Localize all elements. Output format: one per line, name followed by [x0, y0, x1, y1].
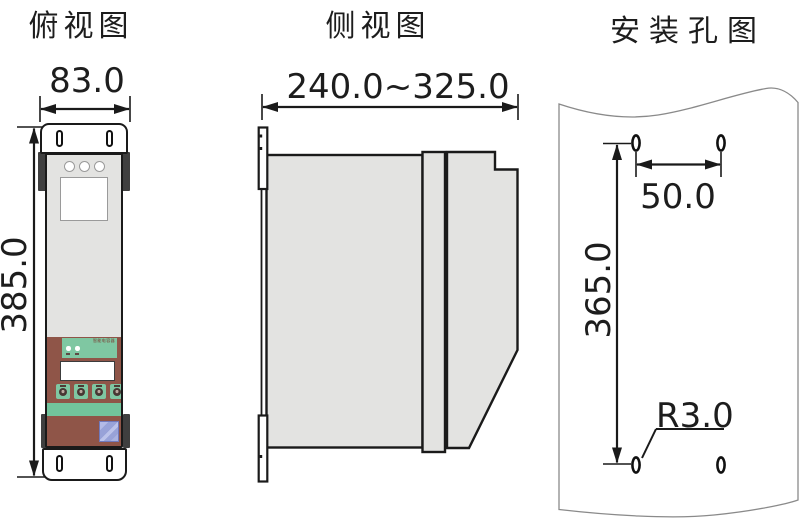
mounting-slot	[56, 455, 63, 472]
side-flange	[123, 414, 130, 448]
device-upper-housing	[47, 155, 121, 337]
device-body: 智能电容器	[45, 153, 123, 448]
vent-hole-row	[47, 161, 121, 172]
panel-header: 智能电容器	[62, 338, 117, 358]
dimension-height-385: 385.0	[0, 236, 32, 333]
mounting-slot	[106, 455, 113, 472]
mounting-hole-bottom-right	[717, 457, 724, 472]
dimension-hole-spacing-50: 50.0	[640, 180, 716, 214]
vent-hole	[94, 161, 105, 172]
knob-button	[92, 384, 106, 399]
top-window	[60, 177, 108, 221]
mounting-hole-top-left	[632, 135, 639, 150]
side-view-title: 侧视图	[326, 1, 431, 45]
lower-terminal-section	[47, 416, 121, 446]
side-view-rear-housing	[447, 152, 518, 448]
side-view-bottom-bracket	[259, 416, 268, 482]
bottom-mounting-bracket	[42, 448, 127, 481]
label-sticker	[99, 421, 119, 442]
side-flange	[122, 152, 130, 191]
mounting-slot	[106, 130, 113, 147]
led-indicator	[66, 346, 71, 351]
button-row	[56, 384, 123, 399]
knob-button	[56, 384, 70, 399]
dimension-hole-spacing-365: 365.0	[582, 241, 616, 338]
vent-hole	[79, 161, 90, 172]
side-view-main-body	[267, 155, 423, 448]
mounting-hole-bottom-left	[632, 457, 639, 472]
dimension-depth-range: 240.0~325.0	[286, 70, 509, 104]
led-label-mark	[66, 353, 70, 355]
mounting-hole-top-right	[717, 135, 724, 150]
panel-brand-text: 智能电容器	[93, 339, 115, 343]
led-indicator	[75, 346, 80, 351]
bracket-notch	[260, 147, 263, 150]
mounting-view-title: 安装孔图	[610, 6, 766, 50]
side-view-rear-band	[423, 152, 446, 452]
dimension-hole-radius: R3.0	[656, 399, 734, 433]
control-panel: 智能电容器	[47, 337, 121, 403]
knob-button	[74, 384, 88, 399]
knob-button	[110, 384, 123, 399]
technical-drawing-canvas: 俯视图 侧视图 安装孔图 83.0 385.0 240.0~325.0 50.0…	[0, 0, 800, 522]
top-mounting-bracket	[40, 123, 128, 154]
green-strip	[47, 403, 121, 416]
led-label-mark	[75, 353, 79, 355]
top-view-device: 智能电容器	[38, 123, 131, 481]
top-view-title: 俯视图	[29, 1, 134, 45]
display-window	[60, 361, 115, 381]
bracket-notch	[260, 455, 263, 458]
dimension-width-83: 83.0	[49, 64, 125, 98]
side-view-device	[259, 128, 518, 482]
bracket-notch	[260, 135, 263, 138]
mounting-slot	[56, 130, 63, 147]
vent-hole	[64, 161, 75, 172]
